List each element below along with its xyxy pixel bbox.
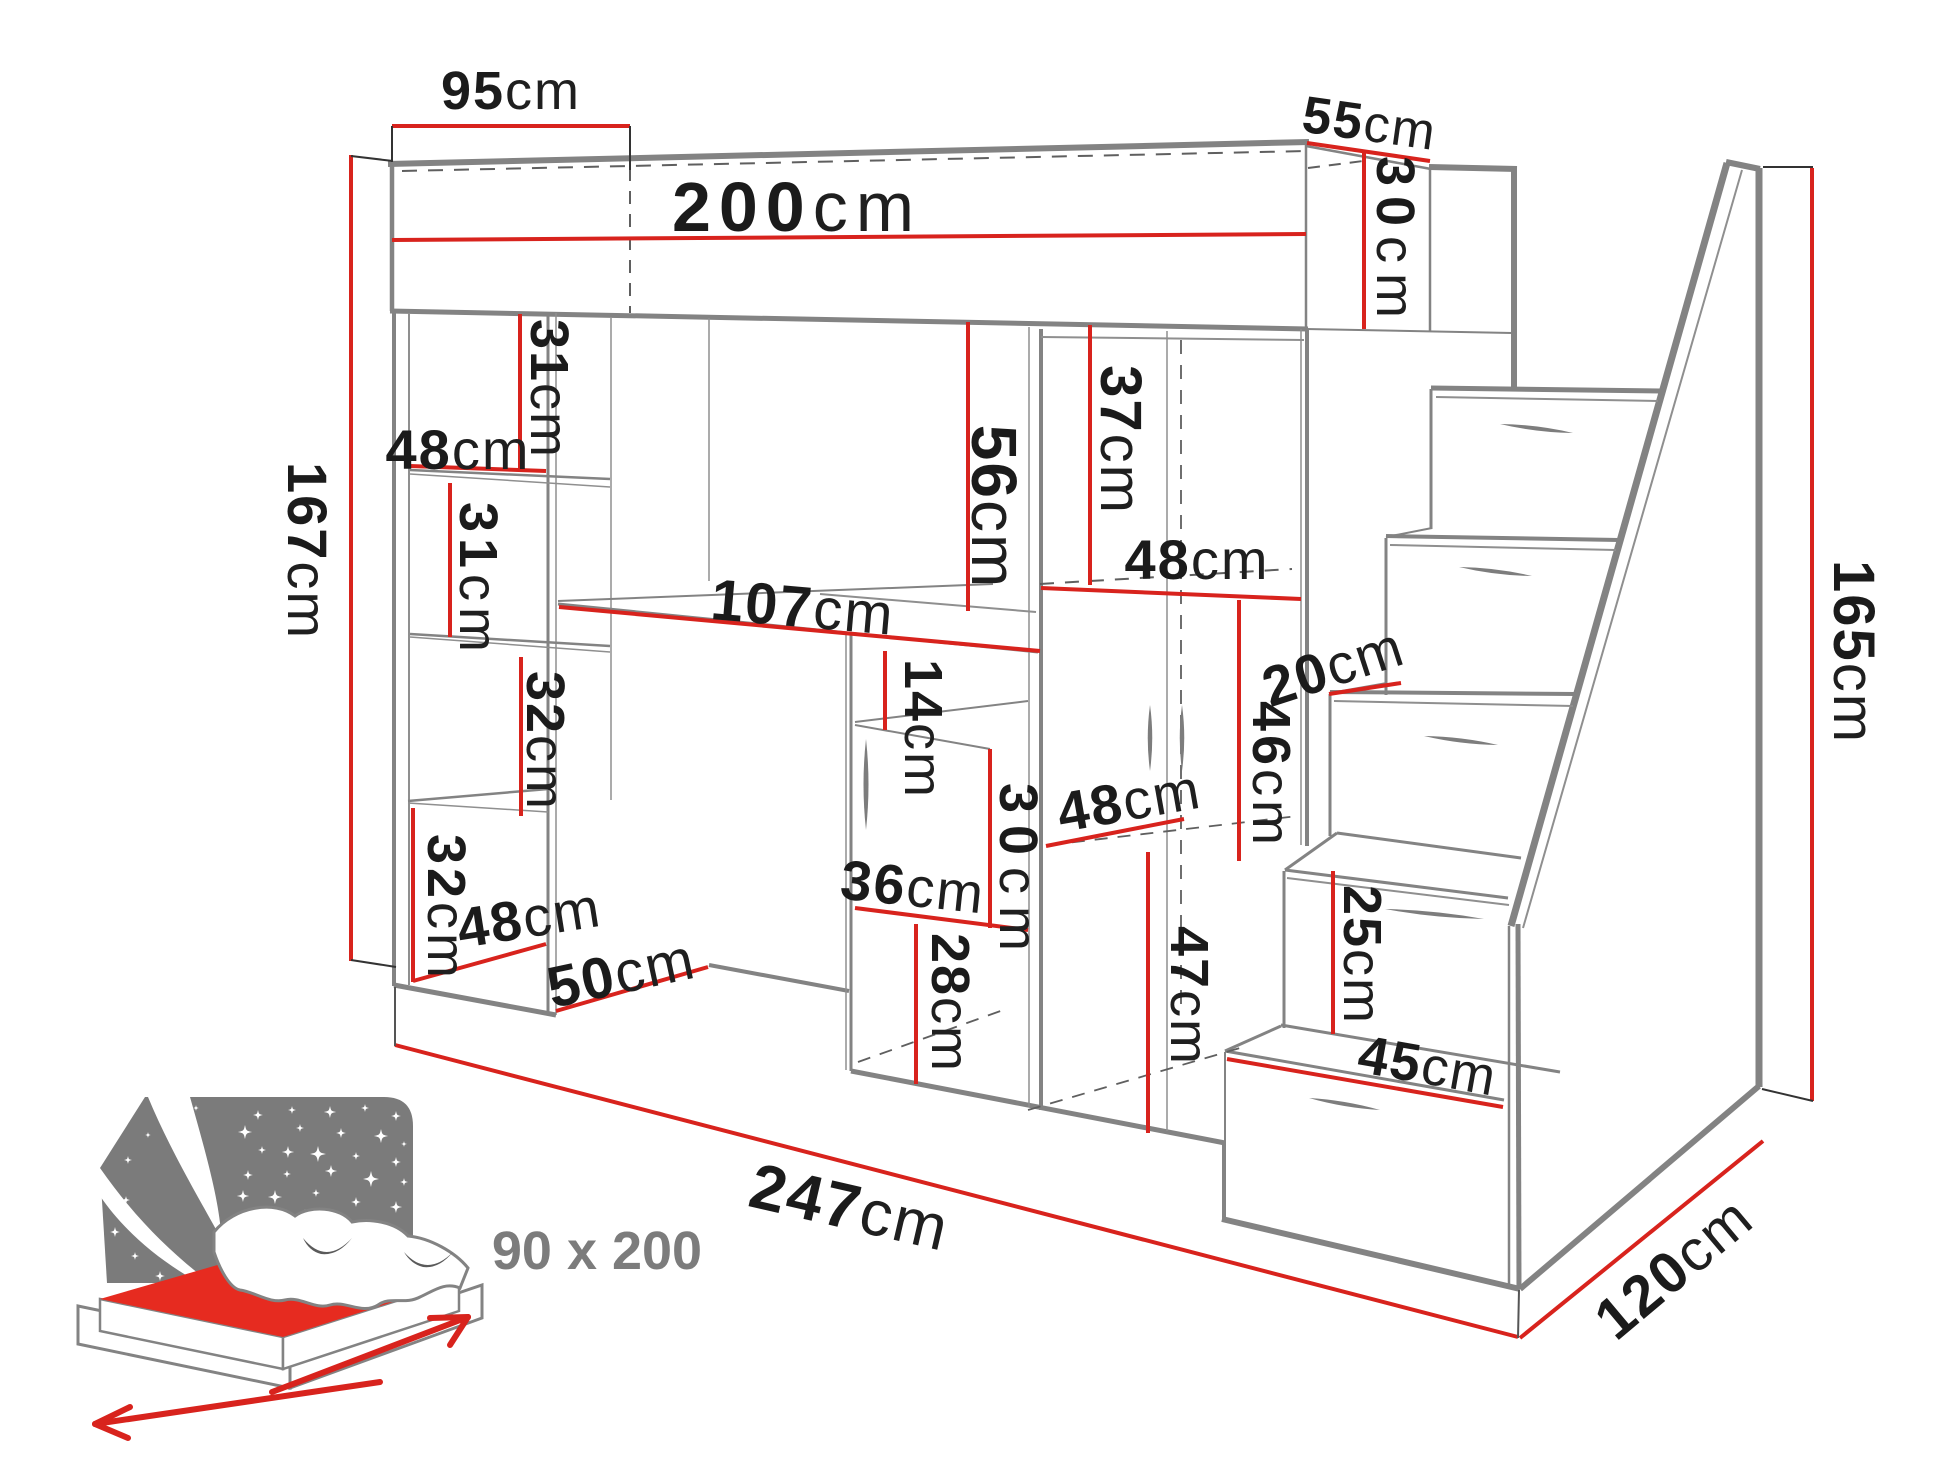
svg-text:56cm: 56cm (958, 425, 1030, 590)
svg-text:30cm: 30cm (1365, 156, 1425, 328)
svg-text:167cm: 167cm (276, 462, 339, 640)
svg-text:32cm: 32cm (515, 671, 575, 811)
svg-text:165cm: 165cm (1821, 560, 1886, 744)
svg-text:95cm: 95cm (441, 61, 581, 121)
svg-text:46cm: 46cm (1241, 701, 1301, 849)
svg-text:200cm: 200cm (672, 168, 922, 246)
svg-text:37cm: 37cm (1088, 365, 1153, 515)
svg-text:25cm: 25cm (1332, 885, 1392, 1025)
svg-text:28cm: 28cm (920, 933, 980, 1073)
svg-text:90 x 200: 90 x 200 (492, 1221, 702, 1281)
svg-text:30cm: 30cm (988, 783, 1048, 963)
svg-text:48cm: 48cm (386, 418, 531, 481)
svg-text:14cm: 14cm (893, 659, 953, 799)
svg-text:48cm: 48cm (1125, 528, 1270, 591)
svg-text:47cm: 47cm (1159, 926, 1219, 1066)
svg-text:31cm: 31cm (448, 502, 508, 658)
